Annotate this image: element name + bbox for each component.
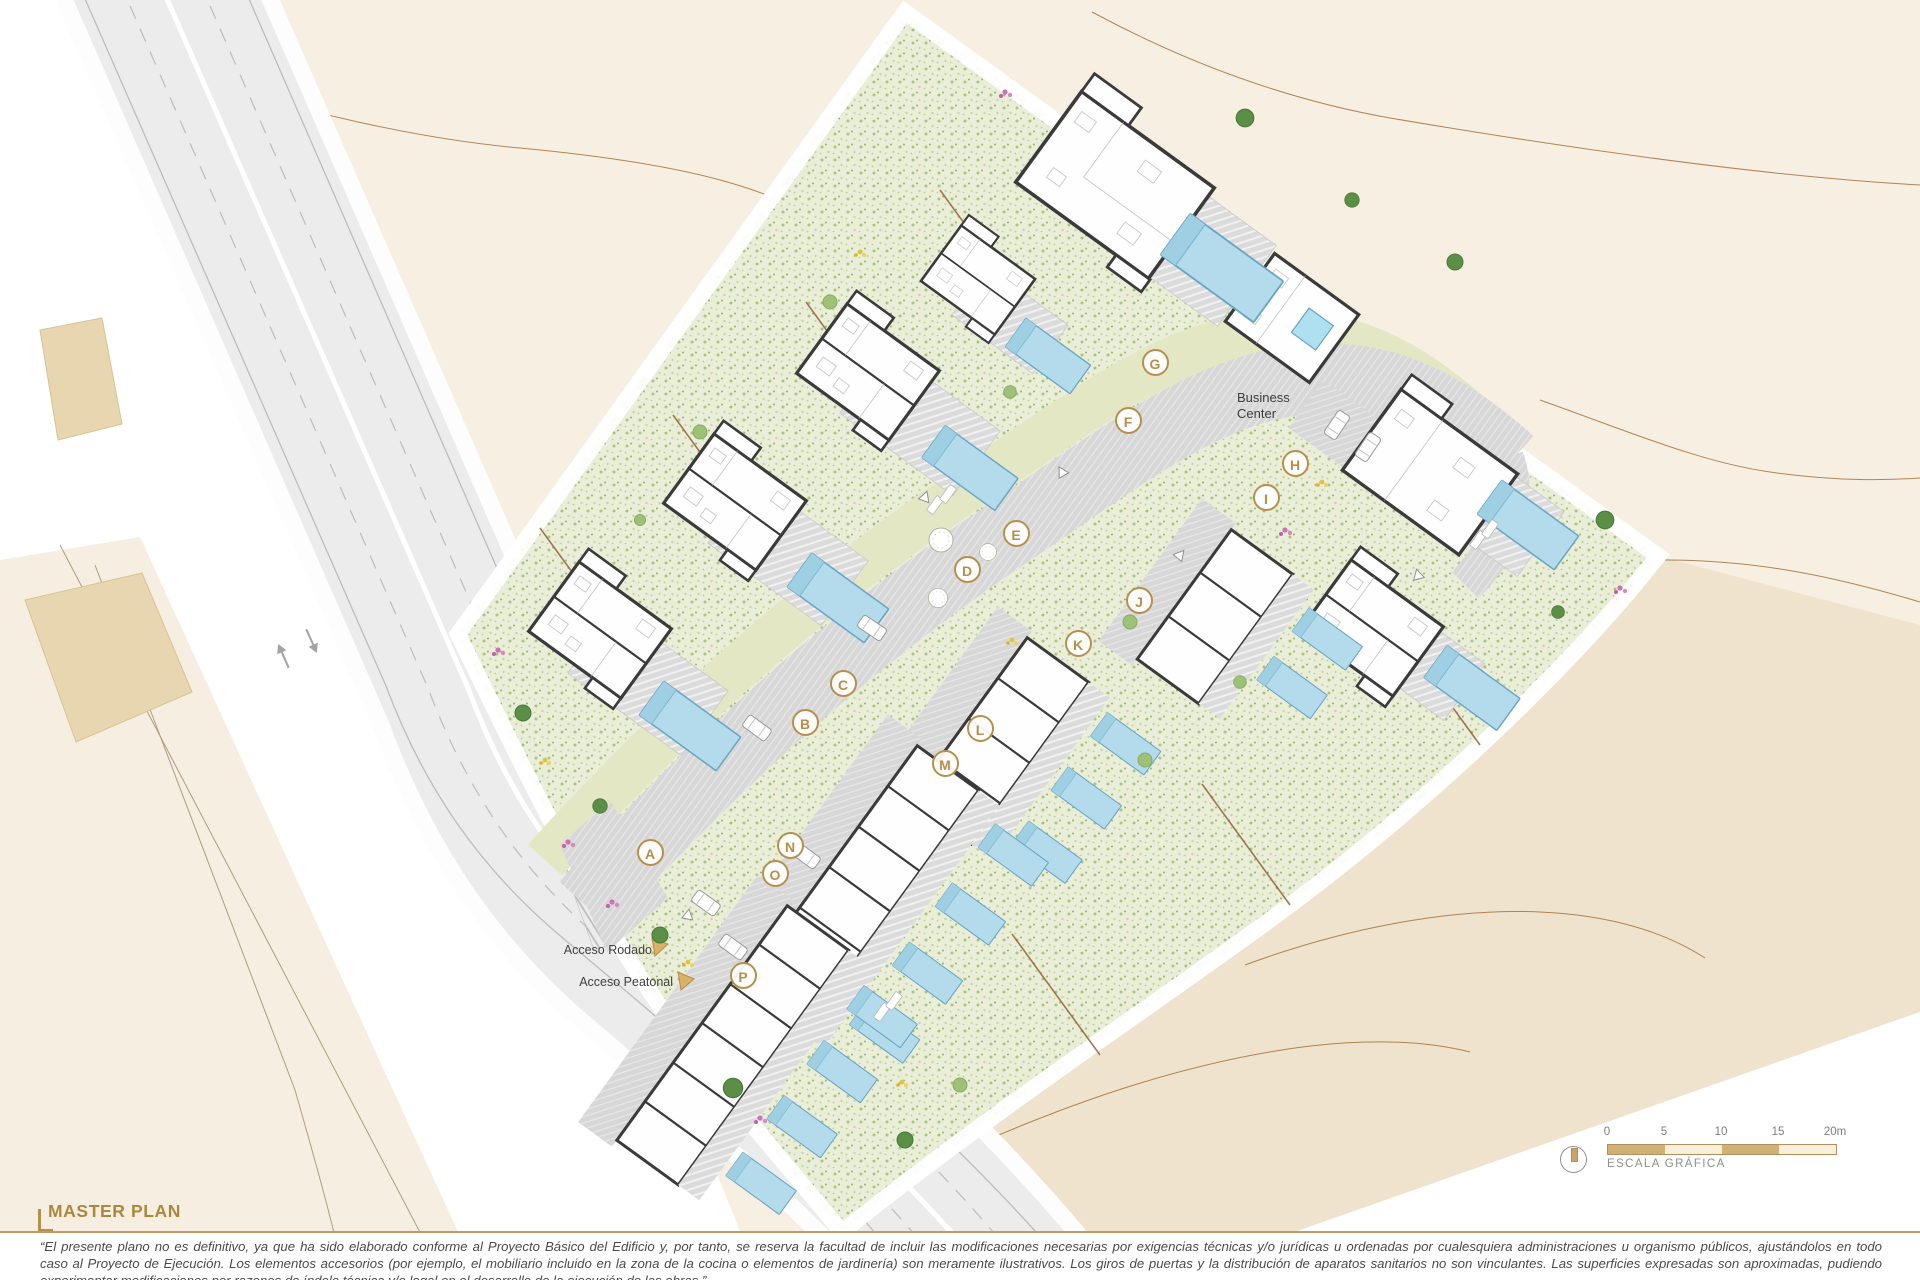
site-plan-canvas (0, 0, 1920, 1280)
master-plan-page: Business Center Acceso Rodado Acceso Pea… (0, 0, 1920, 1280)
